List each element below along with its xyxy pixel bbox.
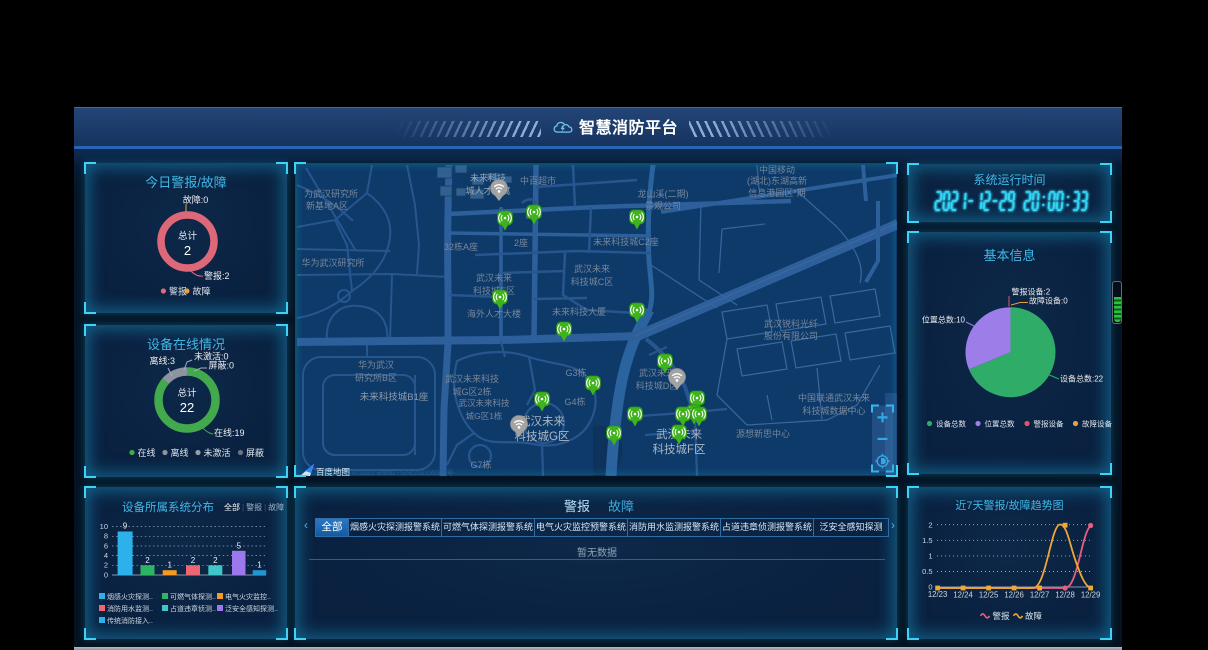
svg-text:故障设备: 故障设备: [1082, 419, 1112, 429]
svg-text:科技城C区: 科技城C区: [571, 276, 614, 287]
svg-text:总计: 总计: [177, 387, 197, 399]
svg-text:武汉锐科光纤: 武汉锐科光纤: [764, 318, 818, 329]
svg-text:1.5: 1.5: [922, 536, 932, 545]
svg-text:G7栋: G7栋: [470, 459, 491, 470]
svg-text:2: 2: [184, 243, 191, 258]
svg-text:为武汉研究所: 为武汉研究所: [304, 188, 358, 199]
svg-text:12/29: 12/29: [1081, 591, 1101, 600]
svg-text:12/28: 12/28: [1055, 591, 1075, 600]
svg-text:离线: 离线: [171, 447, 189, 458]
svg-text:电气火灾监控..: 电气火灾监控..: [225, 592, 271, 601]
svg-text:9: 9: [123, 522, 128, 531]
svg-text:12/26: 12/26: [1004, 591, 1024, 600]
svg-text:未来科技城B1座: 未来科技城B1座: [360, 391, 429, 403]
svg-text:未激活: 未激活: [204, 447, 231, 458]
svg-text:武汉未来科技: 武汉未来科技: [445, 373, 499, 384]
svg-text:0.5: 0.5: [922, 567, 932, 576]
svg-text:1: 1: [167, 561, 172, 570]
svg-text:警报: 警报: [993, 611, 1011, 621]
svg-text:警报设备: 警报设备: [1034, 419, 1064, 429]
svg-text:武汉未来: 武汉未来: [476, 272, 512, 283]
svg-text:股份有限公司: 股份有限公司: [764, 330, 818, 341]
svg-text:警报设备:2: 警报设备:2: [1012, 287, 1051, 297]
svg-text:泛安全感知探测..: 泛安全感知探测..: [225, 604, 278, 613]
svg-text:0: 0: [104, 570, 108, 579]
svg-text:中国联通武汉未来: 中国联通武汉未来: [798, 392, 870, 403]
svg-text:故障设备:0: 故障设备:0: [1029, 296, 1068, 306]
svg-text:源想新思中心: 源想新思中心: [736, 428, 790, 439]
svg-text:2: 2: [104, 561, 108, 570]
svg-text:信息港园区*期: 信息港园区*期: [748, 187, 806, 198]
svg-text:消防用水监测..: 消防用水监测..: [107, 604, 153, 613]
svg-text:10: 10: [100, 522, 108, 531]
svg-text:1: 1: [257, 561, 262, 570]
svg-text:在线: 在线: [138, 447, 156, 458]
svg-text:烟感火灾探测..: 烟感火灾探测..: [107, 592, 153, 601]
svg-text:离线:3: 离线:3: [149, 355, 175, 366]
svg-text:未来科技城C2座: 未来科技城C2座: [593, 236, 659, 247]
svg-text:可燃气体探测..: 可燃气体探测..: [170, 592, 216, 601]
svg-text:景观公司: 景观公司: [645, 201, 681, 211]
svg-text:4: 4: [104, 551, 108, 560]
svg-text:12/23: 12/23: [928, 590, 948, 599]
svg-text:位置总数: 位置总数: [985, 419, 1015, 429]
svg-text:22: 22: [180, 400, 194, 415]
svg-text:8: 8: [104, 532, 108, 541]
svg-text:(湖北)东湖高新: (湖北)东湖高新: [747, 175, 807, 186]
svg-text:中国移动: 中国移动: [759, 165, 795, 175]
svg-text:总计: 总计: [178, 230, 198, 242]
svg-text:传统消防接入..: 传统消防接入..: [107, 616, 153, 625]
svg-text:设备总数:22: 设备总数:22: [1060, 374, 1104, 384]
svg-text:G3栋: G3栋: [565, 367, 586, 378]
svg-text:G4栋: G4栋: [564, 396, 585, 407]
svg-text:在线:19: 在线:19: [214, 427, 245, 438]
svg-text:12/25: 12/25: [979, 591, 999, 600]
svg-text:武汉未来科技: 武汉未来科技: [458, 398, 510, 408]
svg-text:研究所B区: 研究所B区: [355, 372, 397, 383]
svg-text:未来科技大厦: 未来科技大厦: [552, 306, 606, 317]
svg-text:华为武汉研究所: 华为武汉研究所: [301, 257, 364, 268]
svg-text:故障: 故障: [193, 286, 211, 297]
svg-text:12/24: 12/24: [953, 591, 973, 600]
svg-text:华为武汉: 华为武汉: [358, 359, 394, 370]
svg-text:设备总数: 设备总数: [936, 419, 966, 429]
svg-text:故障: 故障: [1025, 611, 1043, 621]
svg-text:警报:2: 警报:2: [204, 270, 230, 281]
svg-text:2: 2: [191, 556, 196, 565]
svg-text:2: 2: [928, 521, 932, 530]
svg-text:海外人才大楼: 海外人才大楼: [467, 308, 521, 319]
svg-text:© 2021 Baidu - GS(2021)6026号: © 2021 Baidu - GS(2021)6026号: [352, 469, 454, 476]
svg-text:1: 1: [928, 552, 932, 561]
svg-text:新基地A区: 新基地A区: [306, 200, 348, 211]
svg-text:5: 5: [237, 541, 242, 550]
svg-text:科技城数据中心: 科技城数据中心: [802, 405, 865, 416]
svg-text:2: 2: [145, 556, 150, 565]
svg-text:屏蔽:0: 屏蔽:0: [209, 360, 235, 371]
svg-text:屏蔽: 屏蔽: [246, 447, 264, 458]
svg-text:故障:0: 故障:0: [183, 194, 209, 205]
svg-text:城G区1栋: 城G区1栋: [466, 411, 503, 421]
svg-text:城G区2栋: 城G区2栋: [452, 386, 491, 397]
svg-text:武汉未来: 武汉未来: [574, 263, 610, 274]
svg-text:占道违章侦测..: 占道违章侦测..: [170, 604, 216, 613]
svg-text:6: 6: [104, 541, 108, 550]
svg-text:2: 2: [213, 556, 218, 565]
svg-text:位置总数:10: 位置总数:10: [922, 315, 966, 325]
svg-text:龙山溪(二期): 龙山溪(二期): [638, 188, 689, 199]
svg-text:12/27: 12/27: [1030, 591, 1050, 600]
svg-text:2座: 2座: [514, 237, 528, 248]
svg-text:百度地图: 百度地图: [316, 467, 350, 476]
svg-text:中百超市: 中百超市: [520, 175, 556, 186]
svg-text:32栋A座: 32栋A座: [444, 241, 478, 252]
